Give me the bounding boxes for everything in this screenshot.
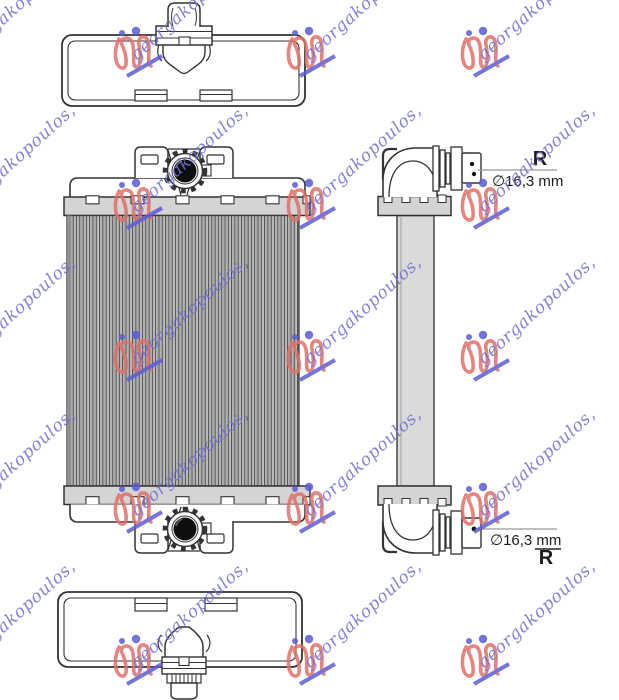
top-view-tab-right xyxy=(200,90,232,101)
filler-cap-black-top xyxy=(174,160,197,183)
radiator-core xyxy=(67,216,299,487)
inlet-port-top xyxy=(383,146,481,197)
top-view-tab-left xyxy=(135,90,167,101)
top-view xyxy=(62,3,305,106)
bottom-view-tab-left xyxy=(135,598,167,611)
radiator-catalog-image: R ∅16,3 mm ∅16,3 mm R xyxy=(0,0,619,700)
radiator-technical-drawing: R ∅16,3 mm ∅16,3 mm R xyxy=(0,0,619,700)
diameter-label-top: ∅16,3 mm xyxy=(492,173,563,190)
r-label-top: R xyxy=(533,148,548,170)
front-view xyxy=(64,147,310,553)
dimension-annotation-bottom: ∅16,3 mm R xyxy=(478,529,561,569)
r-label-bottom: R xyxy=(539,547,554,569)
filler-cap-black-bottom xyxy=(174,518,197,541)
bottom-view-tab-right xyxy=(205,598,237,611)
core-left-edge xyxy=(67,216,71,487)
pipe-end-top xyxy=(462,153,481,183)
side-column xyxy=(397,216,434,487)
mounting-bracket-top-left xyxy=(135,147,168,178)
side-view: R ∅16,3 mm ∅16,3 mm R xyxy=(378,146,563,569)
dimension-annotation-top: R ∅16,3 mm xyxy=(478,148,563,190)
bottom-view xyxy=(58,592,302,699)
outlet-port-bottom xyxy=(383,504,481,555)
pipe-end-bottom xyxy=(462,518,481,548)
